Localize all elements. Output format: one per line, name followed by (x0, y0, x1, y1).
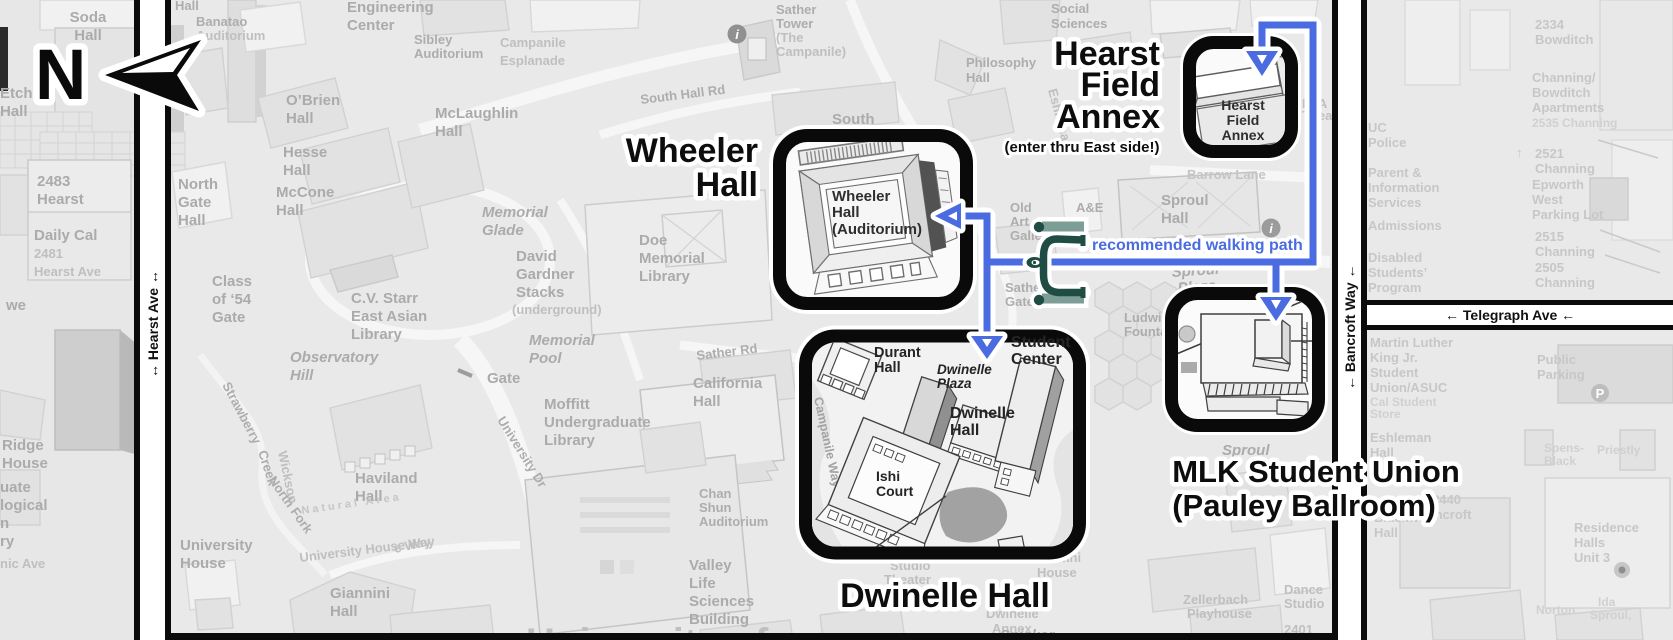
svg-text:Student: Student (1370, 365, 1419, 380)
svg-text:Bowditch: Bowditch (1535, 32, 1594, 47)
svg-text:Hearst Ave: Hearst Ave (34, 264, 101, 279)
svg-text:Dwinelle: Dwinelle (950, 405, 1015, 422)
svg-text:MLK Student Union: MLK Student Union (1172, 454, 1460, 489)
svg-text:Ridge: Ridge (2, 437, 44, 454)
svg-text:Auditorium: Auditorium (699, 514, 768, 529)
svg-text:Channing: Channing (1535, 161, 1595, 176)
svg-text:Annex: Annex (1222, 127, 1265, 143)
svg-text:Admissions: Admissions (1368, 218, 1442, 233)
svg-text:Services: Services (1368, 195, 1422, 210)
svg-text:Ishi: Ishi (876, 468, 900, 484)
svg-text:Hall: Hall (175, 0, 199, 13)
svg-text:Memorial: Memorial (639, 250, 705, 267)
svg-text:Apartments: Apartments (1532, 100, 1604, 115)
svg-text:Center: Center (1011, 351, 1062, 368)
svg-text:(enter thru East side!): (enter thru East side!) (1004, 139, 1159, 156)
svg-text:Observatory: Observatory (290, 349, 379, 366)
svg-text:Dwinelle Hall: Dwinelle Hall (840, 577, 1050, 615)
svg-text:Haviland: Haviland (355, 470, 418, 487)
svg-text:C.V. Starr: C.V. Starr (351, 290, 418, 307)
svg-text:Soda: Soda (70, 9, 107, 26)
svg-text:Stacks: Stacks (516, 284, 564, 301)
svg-text:Hall: Hall (286, 110, 314, 127)
svg-text:Glade: Glade (482, 222, 524, 239)
svg-text:Hesse: Hesse (283, 144, 327, 161)
svg-text:North: North (178, 176, 218, 193)
svg-text:Shun: Shun (699, 500, 732, 515)
svg-text:Dance: Dance (1284, 582, 1323, 597)
svg-text:O’Brien: O’Brien (286, 92, 340, 109)
svg-text:Hall: Hall (276, 202, 304, 219)
svg-text:Hall: Hall (1374, 525, 1398, 540)
svg-text:Hall: Hall (693, 393, 721, 410)
svg-text:Sciences: Sciences (1051, 16, 1107, 31)
svg-text:Hall: Hall (1161, 210, 1189, 227)
svg-text:Union/ASUC: Union/ASUC (1370, 380, 1448, 395)
svg-text:Gardner: Gardner (516, 266, 575, 283)
svg-text:nic Ave: nic Ave (0, 556, 45, 571)
svg-text:Library: Library (351, 326, 403, 343)
svg-text:Esplanade: Esplanade (500, 53, 565, 68)
svg-text:Durant: Durant (874, 345, 921, 361)
svg-text:Sproul: Sproul (1161, 192, 1209, 209)
svg-text:i: i (1269, 221, 1273, 236)
svg-text:Library: Library (544, 432, 596, 449)
svg-text:Chan: Chan (699, 486, 732, 501)
svg-text:← Telegraph Ave ←: ← Telegraph Ave ← (1445, 307, 1575, 323)
svg-text:← Bancroft Way ←: ← Bancroft Way ← (1342, 265, 1358, 391)
svg-text:Tower: Tower (776, 16, 813, 31)
svg-text:Philosophy: Philosophy (966, 55, 1037, 70)
svg-text:Court: Court (876, 483, 914, 499)
svg-text:Life: Life (689, 575, 716, 592)
svg-text:Hall: Hall (283, 162, 311, 179)
svg-text:N: N (35, 36, 86, 115)
svg-text:Hall: Hall (0, 103, 28, 120)
svg-text:Campanile: Campanile (500, 35, 566, 50)
svg-text:(Pauley Ballroom): (Pauley Ballroom) (1172, 488, 1436, 523)
svg-text:Hall: Hall (966, 70, 990, 85)
svg-text:(Auditorium): (Auditorium) (832, 221, 922, 238)
svg-text:2481: 2481 (34, 246, 63, 261)
svg-text:Students’: Students’ (1368, 265, 1427, 280)
svg-text:Auditorium: Auditorium (414, 46, 483, 61)
svg-text:Studio: Studio (1284, 596, 1324, 611)
svg-text:Memorial: Memorial (482, 204, 549, 221)
svg-text:2440: 2440 (1432, 492, 1461, 507)
svg-text:UC: UC (1368, 120, 1387, 135)
svg-text:Epworth: Epworth (1532, 177, 1584, 192)
svg-text:2483: 2483 (37, 173, 70, 190)
svg-text:(underground): (underground) (512, 302, 602, 317)
svg-text:East Asian: East Asian (351, 308, 427, 325)
svg-text:uate: uate (0, 479, 31, 496)
svg-text:Hall: Hall (435, 123, 463, 140)
svg-text:Residence: Residence (1574, 520, 1639, 535)
svg-text:Daily Cal: Daily Cal (34, 227, 97, 244)
svg-text:i: i (735, 27, 739, 42)
svg-text:Disabled: Disabled (1368, 250, 1422, 265)
svg-text:Gate: Gate (1005, 294, 1034, 309)
svg-text:Annex: Annex (1056, 98, 1160, 136)
svg-text:Hall: Hall (330, 603, 358, 620)
svg-text:Doe: Doe (639, 232, 667, 249)
svg-text:Etch: Etch (0, 85, 33, 102)
svg-text:Channing: Channing (1535, 275, 1595, 290)
svg-text:Hill: Hill (290, 367, 314, 384)
svg-text:Class: Class (212, 273, 252, 290)
svg-text:Sciences: Sciences (689, 593, 754, 610)
svg-text:↑: ↑ (1516, 145, 1523, 160)
svg-text:House: House (180, 555, 226, 572)
svg-text:Art: Art (1010, 214, 1029, 229)
svg-text:(The: (The (776, 30, 803, 45)
svg-text:Hearst: Hearst (37, 191, 84, 208)
svg-text:Banatao: Banatao (196, 14, 247, 29)
svg-text:Playhouse: Playhouse (1187, 606, 1252, 621)
svg-text:Parking: Parking (1537, 367, 1585, 382)
svg-text:Student: Student (1011, 334, 1071, 351)
svg-text:Eshleman: Eshleman (1370, 430, 1431, 445)
svg-text:Hall: Hall (832, 204, 860, 221)
svg-text:Store: Store (1370, 407, 1401, 421)
svg-text:Parking Lot: Parking Lot (1532, 207, 1604, 222)
svg-text:we: we (5, 297, 26, 314)
svg-text:Ida: Ida (1598, 595, 1616, 609)
svg-text:Bowditch: Bowditch (1532, 85, 1591, 100)
svg-text:Black: Black (1544, 454, 1576, 468)
svg-text:Unit 3: Unit 3 (1574, 550, 1610, 565)
svg-text:↔ Hearst Ave ↔: ↔ Hearst Ave ↔ (145, 270, 161, 378)
svg-text:Hall: Hall (874, 360, 901, 376)
svg-text:Halls: Halls (1574, 535, 1605, 550)
svg-text:Channing/: Channing/ (1532, 70, 1596, 85)
svg-text:Hearst: Hearst (1221, 97, 1265, 113)
svg-text:California: California (693, 375, 763, 392)
svg-text:Memorial: Memorial (529, 332, 596, 349)
svg-text:logical: logical (0, 497, 48, 514)
svg-text:Giannini: Giannini (330, 585, 390, 602)
svg-text:McCone: McCone (276, 184, 334, 201)
svg-text:Gate: Gate (178, 194, 211, 211)
svg-text:McLaughlin: McLaughlin (435, 105, 518, 122)
svg-text:2535 Channing: 2535 Channing (1532, 116, 1617, 130)
svg-text:Hall: Hall (178, 212, 206, 229)
svg-text:P: P (1596, 386, 1605, 401)
svg-text:Martin Luther: Martin Luther (1370, 335, 1453, 350)
svg-text:A&E: A&E (1076, 200, 1104, 215)
svg-text:Police: Police (1368, 135, 1406, 150)
svg-text:Wheeler: Wheeler (832, 188, 891, 205)
svg-text:Plaza: Plaza (937, 376, 972, 391)
svg-text:Information: Information (1368, 180, 1440, 195)
svg-text:Center: Center (347, 17, 395, 34)
svg-text:Gate: Gate (212, 309, 245, 326)
svg-text:West: West (1532, 192, 1563, 207)
svg-text:Public: Public (1537, 352, 1576, 367)
svg-text:Engineering: Engineering (347, 0, 434, 16)
svg-text:recommended walking path: recommended walking path (1092, 237, 1303, 254)
svg-text:Dwinelle: Dwinelle (937, 362, 992, 377)
svg-text:Wheeler: Wheeler (626, 132, 758, 170)
svg-text:Program: Program (1368, 280, 1421, 295)
svg-text:Valley: Valley (689, 557, 732, 574)
svg-text:n: n (0, 515, 9, 532)
svg-text:2334: 2334 (1535, 17, 1565, 32)
svg-text:Channing: Channing (1535, 244, 1595, 259)
svg-text:Gate: Gate (487, 370, 520, 387)
svg-text:University: University (180, 537, 253, 554)
svg-text:Campanile): Campanile) (776, 44, 846, 59)
svg-text:Library: Library (639, 268, 691, 285)
svg-text:King Jr.: King Jr. (1370, 350, 1418, 365)
svg-text:David: David (516, 248, 557, 265)
svg-text:Spens-: Spens- (1544, 441, 1584, 455)
svg-text:2521: 2521 (1535, 146, 1564, 161)
svg-text:Priestly: Priestly (1597, 443, 1641, 457)
svg-text:2515: 2515 (1535, 229, 1564, 244)
svg-text:Sibley: Sibley (414, 32, 453, 47)
svg-text:Sather: Sather (776, 2, 816, 17)
svg-text:Norton: Norton (1536, 603, 1575, 617)
svg-text:Social: Social (1051, 1, 1089, 16)
svg-text:Parent &: Parent & (1368, 165, 1421, 180)
svg-text:of ‘54: of ‘54 (212, 291, 252, 308)
svg-text:Zellerbach: Zellerbach (1183, 592, 1248, 607)
svg-text:Undergraduate: Undergraduate (544, 414, 651, 431)
svg-text:ry: ry (0, 533, 15, 550)
svg-text:Hall: Hall (696, 166, 758, 204)
svg-text:House: House (2, 455, 48, 472)
svg-text:Sproul,: Sproul, (1590, 608, 1631, 622)
svg-text:Moffitt: Moffitt (544, 396, 590, 413)
svg-text:Field: Field (1227, 112, 1260, 128)
svg-text:Hall: Hall (950, 422, 979, 439)
svg-text:Barrow Lane: Barrow Lane (1187, 167, 1266, 182)
svg-text:2505: 2505 (1535, 260, 1564, 275)
svg-text:Old: Old (1010, 200, 1032, 215)
svg-text:Pool: Pool (529, 350, 562, 367)
